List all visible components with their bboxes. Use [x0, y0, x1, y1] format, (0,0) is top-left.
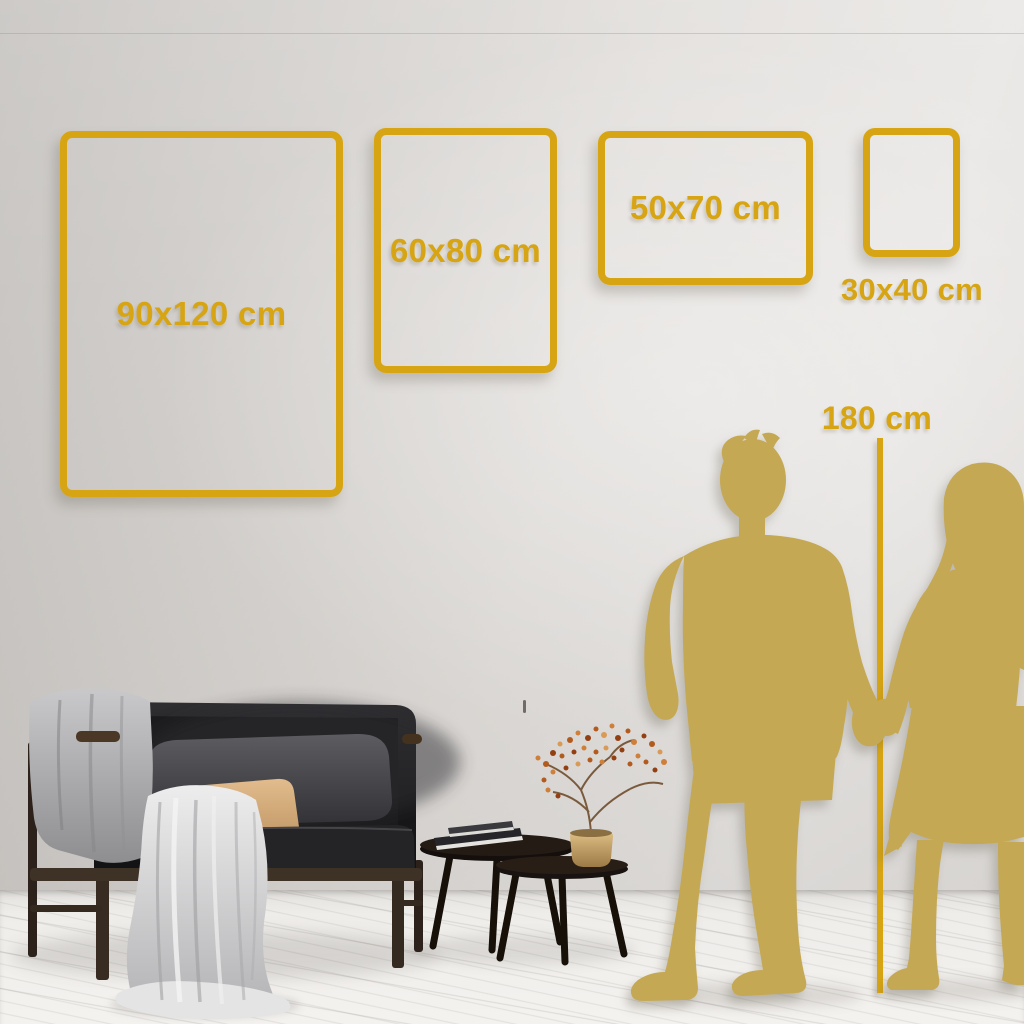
frame-size-60x80-label: 60x80 cm — [390, 232, 541, 270]
man-silhouette — [631, 430, 888, 1001]
height-marker-label: 180 cm — [807, 400, 947, 437]
frame-size-50x70: 50x70 cm — [598, 131, 813, 285]
woman-silhouette — [874, 463, 1024, 991]
frame-size-30x40-label: 30x40 cm — [837, 272, 987, 308]
size-guide-scene: 90x120 cm 60x80 cm 50x70 cm 30x40 cm 180… — [0, 0, 1024, 1024]
frame-size-60x80: 60x80 cm — [374, 128, 557, 373]
frame-size-90x120: 90x120 cm — [60, 131, 343, 497]
frame-size-30x40 — [863, 128, 960, 257]
frame-size-90x120-label: 90x120 cm — [117, 295, 287, 333]
frame-size-50x70-label: 50x70 cm — [630, 189, 781, 227]
